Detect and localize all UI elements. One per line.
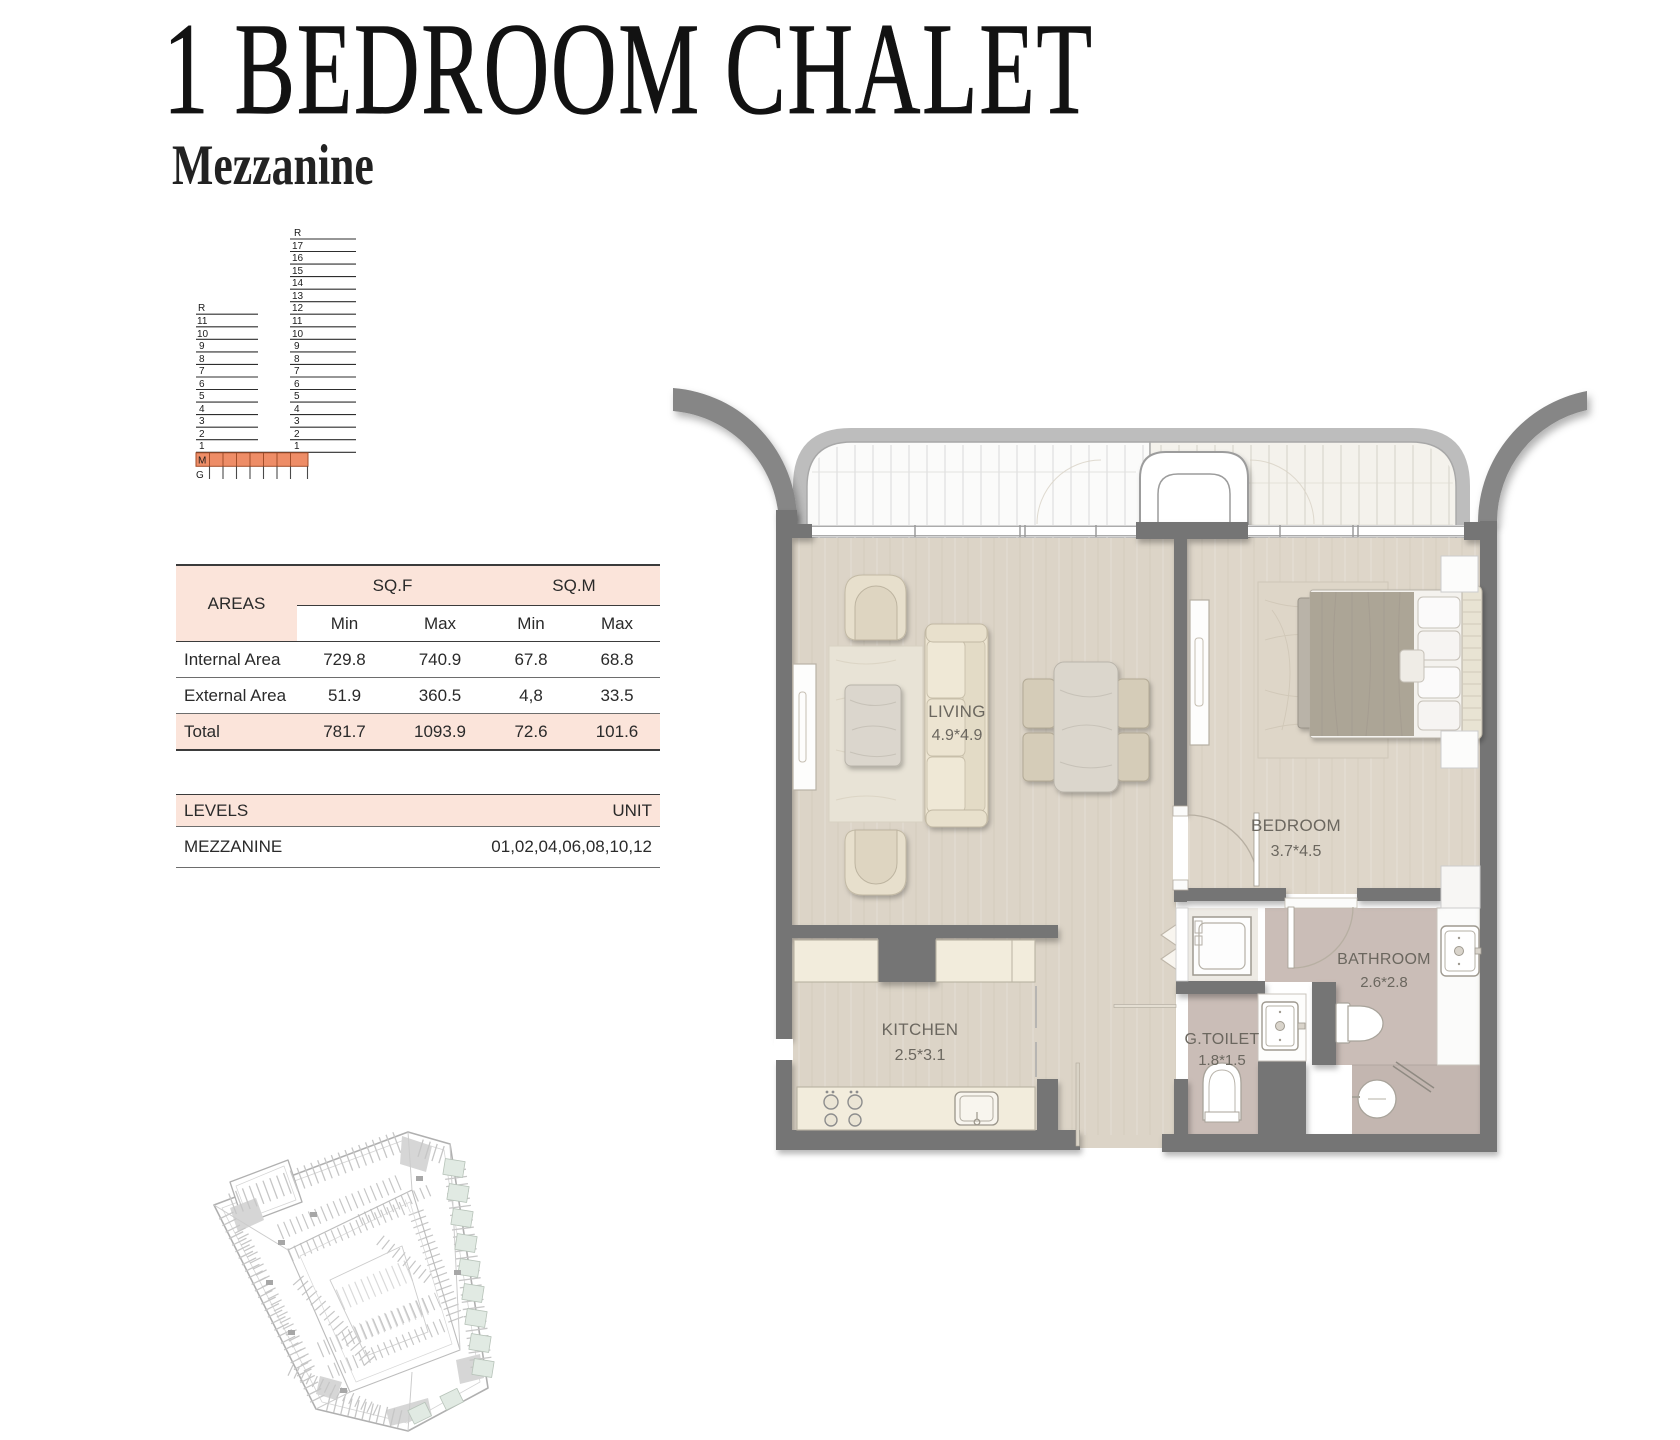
svg-text:G: G — [196, 470, 204, 481]
svg-text:7: 7 — [294, 366, 300, 377]
svg-text:14: 14 — [292, 278, 304, 289]
svg-text:2.5*3.1: 2.5*3.1 — [895, 1047, 946, 1064]
svg-text:7: 7 — [199, 366, 205, 377]
svg-text:15: 15 — [292, 266, 304, 277]
svg-text:6: 6 — [294, 379, 300, 390]
svg-text:11: 11 — [292, 316, 303, 327]
svg-text:12: 12 — [292, 303, 304, 314]
svg-text:3: 3 — [294, 416, 300, 427]
svg-text:4.9*4.9: 4.9*4.9 — [932, 727, 983, 744]
svg-text:5: 5 — [294, 391, 300, 402]
svg-text:11: 11 — [197, 316, 208, 327]
svg-text:M: M — [198, 456, 206, 467]
svg-text:R: R — [294, 228, 301, 239]
svg-text:1.8*1.5: 1.8*1.5 — [1198, 1052, 1246, 1069]
svg-text:13: 13 — [292, 291, 304, 302]
svg-text:8: 8 — [199, 354, 205, 365]
svg-text:1: 1 — [294, 441, 300, 452]
svg-text:10: 10 — [197, 329, 209, 340]
svg-text:8: 8 — [294, 354, 300, 365]
svg-text:17: 17 — [292, 241, 304, 252]
svg-text:16: 16 — [292, 253, 304, 264]
svg-text:LIVING: LIVING — [928, 702, 986, 721]
svg-text:R: R — [198, 303, 205, 314]
svg-text:6: 6 — [199, 379, 205, 390]
svg-text:KITCHEN: KITCHEN — [882, 1020, 959, 1039]
svg-text:2.6*2.8: 2.6*2.8 — [1360, 974, 1408, 991]
svg-text:4: 4 — [294, 404, 300, 415]
svg-text:9: 9 — [199, 341, 205, 352]
svg-text:4: 4 — [199, 404, 205, 415]
svg-text:3: 3 — [199, 416, 205, 427]
svg-text:BATHROOM: BATHROOM — [1337, 951, 1431, 968]
svg-text:BEDROOM: BEDROOM — [1251, 816, 1341, 835]
svg-text:2: 2 — [294, 429, 300, 440]
svg-text:5: 5 — [199, 391, 205, 402]
svg-text:G.TOILET: G.TOILET — [1184, 1031, 1259, 1048]
svg-text:2: 2 — [199, 429, 205, 440]
svg-text:10: 10 — [292, 329, 304, 340]
svg-text:1: 1 — [199, 441, 205, 452]
svg-text:9: 9 — [294, 341, 300, 352]
svg-text:3.7*4.5: 3.7*4.5 — [1271, 843, 1322, 860]
